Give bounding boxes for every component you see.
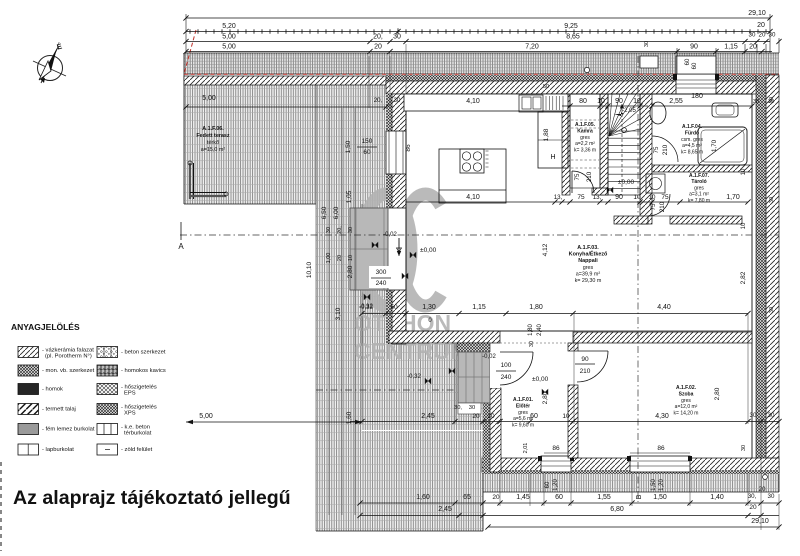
svg-text:1,20: 1,20 (553, 479, 559, 491)
svg-text:- mon. vb. szerkezet: - mon. vb. szerkezet (42, 368, 95, 374)
svg-text:2,45: 2,45 (438, 506, 452, 513)
svg-text:1,70: 1,70 (711, 139, 718, 152)
svg-text:-0,02: -0,02 (383, 232, 397, 238)
svg-text:20: 20 (749, 504, 757, 511)
svg-text:10: 10 (741, 222, 747, 229)
svg-text:240: 240 (501, 374, 512, 381)
svg-text:a=2,2 m²: a=2,2 m² (575, 141, 595, 147)
svg-text:gres: gres (681, 398, 691, 404)
svg-text:Fürdő: Fürdő (685, 130, 699, 136)
svg-text:5,00: 5,00 (202, 95, 216, 102)
svg-text:4,10: 4,10 (466, 98, 480, 105)
svg-text:-0,32: -0,32 (407, 374, 421, 380)
svg-text:60: 60 (363, 149, 371, 156)
svg-text:- beton szerkezet: - beton szerkezet (121, 350, 166, 356)
svg-text:Kamra: Kamra (577, 128, 593, 134)
svg-text:7,20: 7,20 (525, 44, 539, 51)
svg-text:75: 75 (661, 194, 669, 201)
svg-text:2,55: 2,55 (669, 98, 683, 105)
svg-text:H: H (550, 154, 555, 161)
svg-text:1,15: 1,15 (472, 304, 486, 311)
svg-text:20,: 20, (337, 226, 343, 234)
svg-text:1,15: 1,15 (724, 44, 738, 51)
svg-text:-2,05: -2,05 (622, 108, 636, 114)
svg-text:50: 50 (543, 84, 549, 90)
svg-text:-0,32: -0,32 (359, 305, 373, 311)
svg-text:30: 30 (741, 445, 747, 451)
svg-text:30: 30 (749, 32, 756, 39)
svg-text:k= 9,60 m: k= 9,60 m (512, 423, 534, 429)
svg-text:- fém lemez burkolat: - fém lemez burkolat (42, 427, 95, 433)
svg-text:86: 86 (657, 445, 665, 452)
svg-text:10: 10 (741, 168, 747, 175)
svg-text:4,10: 4,10 (466, 194, 480, 201)
svg-text:2,80: 2,80 (347, 265, 354, 278)
svg-text:150: 150 (362, 138, 373, 145)
svg-text:csm. gres: csm. gres (681, 137, 703, 143)
svg-text:A.1.F.05.: A.1.F.05. (575, 122, 596, 128)
svg-text:30: 30 (529, 341, 535, 347)
svg-text:20: 20 (374, 44, 382, 51)
svg-text:3,10: 3,10 (335, 307, 342, 320)
svg-text:30: 30 (769, 197, 775, 203)
svg-text:a=3,1 m²: a=3,1 m² (689, 192, 709, 198)
svg-text:A.1.F.02.: A.1.F.02. (676, 385, 697, 391)
svg-text:30: 30 (469, 405, 475, 411)
svg-text:2,01: 2,01 (523, 443, 529, 454)
svg-text:1,45: 1,45 (516, 494, 530, 501)
svg-text:- termett talaj: - termett talaj (42, 407, 76, 413)
svg-text:60: 60 (692, 62, 698, 69)
svg-text:A.1.F.03.: A.1.F.03. (577, 245, 599, 251)
svg-text:1,50: 1,50 (653, 494, 667, 501)
svg-text:30: 30 (750, 412, 757, 419)
svg-text:5,20: 5,20 (222, 23, 236, 30)
svg-text:6,00: 6,00 (333, 206, 340, 219)
svg-text:180: 180 (691, 93, 703, 100)
svg-text:Szoba: Szoba (679, 391, 694, 397)
svg-text:A.1.F.01.: A.1.F.01. (513, 397, 534, 403)
svg-text:65: 65 (463, 494, 471, 501)
svg-text:20: 20 (757, 22, 765, 29)
svg-text:20,: 20, (373, 34, 383, 41)
svg-text:75: 75 (574, 173, 581, 180)
svg-text:20,: 20, (374, 97, 383, 104)
svg-text:A.1.F.04.: A.1.F.04. (682, 124, 703, 130)
svg-text:30: 30 (753, 99, 759, 105)
svg-text:13,: 13, (554, 194, 563, 201)
svg-text:4,30: 4,30 (655, 413, 669, 420)
svg-text:a=15,0 m²: a=15,0 m² (201, 147, 226, 153)
svg-text:- lapburkolat: - lapburkolat (42, 447, 74, 453)
svg-text:50: 50 (390, 304, 398, 311)
svg-text:1,40: 1,40 (710, 494, 724, 501)
svg-text:2,45: 2,45 (421, 413, 435, 420)
svg-text:30: 30 (393, 34, 401, 41)
svg-text:20: 20 (749, 44, 757, 51)
svg-text:1,70: 1,70 (726, 194, 740, 201)
svg-text:8,65: 8,65 (566, 34, 580, 41)
svg-text:75: 75 (653, 146, 660, 153)
svg-text:30: 30 (769, 307, 775, 313)
svg-text:XPS: XPS (124, 411, 136, 417)
svg-text:86: 86 (552, 445, 560, 452)
svg-text:300: 300 (376, 269, 387, 276)
svg-text:1,00: 1,00 (326, 253, 332, 264)
svg-text:240: 240 (376, 280, 387, 287)
svg-text:210: 210 (586, 171, 593, 182)
svg-text:ANYAGJELÖLÉS: ANYAGJELÖLÉS (11, 322, 80, 332)
svg-text:75: 75 (650, 203, 657, 210)
svg-text:1,20: 1,20 (659, 479, 665, 491)
svg-text:B: B (636, 494, 643, 499)
svg-text:2,82: 2,82 (740, 271, 747, 284)
svg-text:10: 10 (633, 194, 641, 201)
svg-text:1,80: 1,80 (528, 324, 534, 336)
svg-text:210: 210 (580, 368, 591, 375)
svg-text:gres: gres (580, 135, 590, 141)
svg-text:60: 60 (530, 413, 538, 420)
svg-text:Fedett terasz: Fedett terasz (196, 133, 230, 139)
svg-text:1,55: 1,55 (597, 494, 611, 501)
svg-text:±0,00: ±0,00 (618, 179, 635, 186)
svg-text:4,12: 4,12 (542, 243, 549, 256)
svg-text:4,40: 4,40 (657, 304, 671, 311)
svg-text:EPS: EPS (124, 391, 136, 397)
svg-text:20: 20 (492, 494, 500, 501)
svg-text:10,10: 10,10 (306, 261, 313, 278)
svg-text:210: 210 (662, 144, 669, 155)
svg-text:térburkolat: térburkolat (124, 431, 152, 437)
svg-text:210: 210 (659, 201, 666, 212)
svg-text:60: 60 (545, 481, 551, 488)
svg-text:10: 10 (562, 413, 570, 420)
svg-text:gres: gres (518, 410, 528, 416)
svg-text:Konyha/Étkező: Konyha/Étkező (569, 250, 608, 258)
svg-text:29,10: 29,10 (751, 518, 769, 525)
svg-text:1,88: 1,88 (543, 128, 550, 141)
svg-text:29,10: 29,10 (748, 10, 766, 17)
svg-text:2,80: 2,80 (542, 391, 549, 404)
svg-text:90: 90 (615, 194, 623, 201)
svg-text:30: 30 (768, 99, 774, 105)
svg-text:A.1.F.07.: A.1.F.07. (689, 173, 710, 179)
svg-text:Előtér: Előtér (516, 403, 530, 409)
svg-text:Nappali: Nappali (578, 258, 598, 264)
svg-text:k= 14,20 m: k= 14,20 m (674, 411, 699, 417)
svg-text:30: 30 (487, 413, 495, 420)
svg-text:a=4,5 m²: a=4,5 m² (682, 143, 702, 149)
svg-text:k= 7,80 m: k= 7,80 m (688, 198, 710, 204)
svg-text:1,50: 1,50 (651, 479, 657, 491)
svg-text:±0,00: ±0,00 (420, 247, 437, 254)
svg-text:±0,00: ±0,00 (532, 376, 549, 383)
svg-text:20: 20 (759, 32, 766, 39)
svg-text:20: 20 (472, 413, 480, 420)
svg-text:30: 30 (644, 41, 650, 47)
svg-text:1,60: 1,60 (416, 494, 430, 501)
svg-text:90: 90 (690, 44, 698, 51)
svg-text:60: 60 (685, 58, 691, 65)
svg-text:13,: 13, (593, 194, 602, 201)
svg-text:A: A (178, 242, 184, 251)
svg-text:Tároló: Tároló (691, 179, 706, 185)
svg-text:30: 30 (394, 97, 401, 104)
svg-text:60: 60 (555, 494, 563, 501)
svg-text:a=12,0 m²: a=12,0 m² (675, 404, 698, 410)
svg-text:5,00: 5,00 (222, 34, 236, 41)
svg-text:k= 3,36 m: k= 3,36 m (574, 148, 596, 154)
svg-text:90: 90 (615, 98, 623, 105)
svg-text:10: 10 (649, 194, 656, 201)
svg-text:-0,02: -0,02 (482, 354, 496, 360)
svg-text:1,80: 1,80 (529, 304, 543, 311)
svg-text:75: 75 (577, 194, 585, 201)
svg-text:30: 30 (326, 227, 332, 233)
svg-text:- zöld felület: - zöld felület (121, 447, 153, 453)
svg-text:20: 20 (759, 486, 766, 493)
svg-text:Az alaprajz tájékoztató jelleg: Az alaprajz tájékoztató jellegű (13, 487, 291, 509)
svg-text:5,00: 5,00 (199, 413, 213, 420)
svg-text:- homokos kavics: - homokos kavics (121, 368, 166, 374)
svg-text:90: 90 (581, 356, 589, 363)
svg-text:86: 86 (405, 144, 412, 152)
svg-text:6,80: 6,80 (610, 506, 624, 513)
svg-text:9,25: 9,25 (564, 23, 578, 30)
svg-text:20: 20 (337, 255, 343, 261)
svg-text:30: 30 (768, 493, 775, 500)
svg-text:30: 30 (348, 227, 354, 233)
svg-text:1,30: 1,30 (422, 304, 436, 311)
svg-text:gres: gres (583, 265, 594, 271)
svg-text:10: 10 (633, 98, 641, 105)
svg-text:(pl. Porotherm N°): (pl. Porotherm N°) (45, 354, 92, 360)
svg-text:k= 8,65 m: k= 8,65 m (681, 150, 703, 156)
svg-text:10: 10 (597, 98, 605, 105)
svg-text:térkő: térkő (207, 140, 219, 146)
svg-text:- homok: - homok (42, 387, 63, 393)
svg-text:30: 30 (769, 32, 776, 39)
svg-text:2,80: 2,80 (714, 387, 721, 400)
svg-text:5,00: 5,00 (222, 44, 236, 51)
svg-text:30,: 30, (748, 493, 757, 500)
svg-text:10: 10 (348, 255, 354, 261)
svg-text:A.1.F.06.: A.1.F.06. (202, 126, 224, 132)
svg-text:80: 80 (579, 98, 587, 105)
svg-text:1,05: 1,05 (346, 190, 353, 203)
svg-text:100: 100 (501, 362, 512, 369)
svg-text:30: 30 (768, 412, 775, 419)
svg-text:k= 29,30 m: k= 29,30 m (575, 278, 602, 284)
svg-text:2,40: 2,40 (537, 324, 543, 336)
svg-text:6,50: 6,50 (321, 206, 328, 219)
svg-text:a=39,9 m²: a=39,9 m² (576, 271, 601, 277)
svg-text:1,50: 1,50 (345, 140, 352, 153)
svg-text:gres: gres (694, 185, 704, 191)
